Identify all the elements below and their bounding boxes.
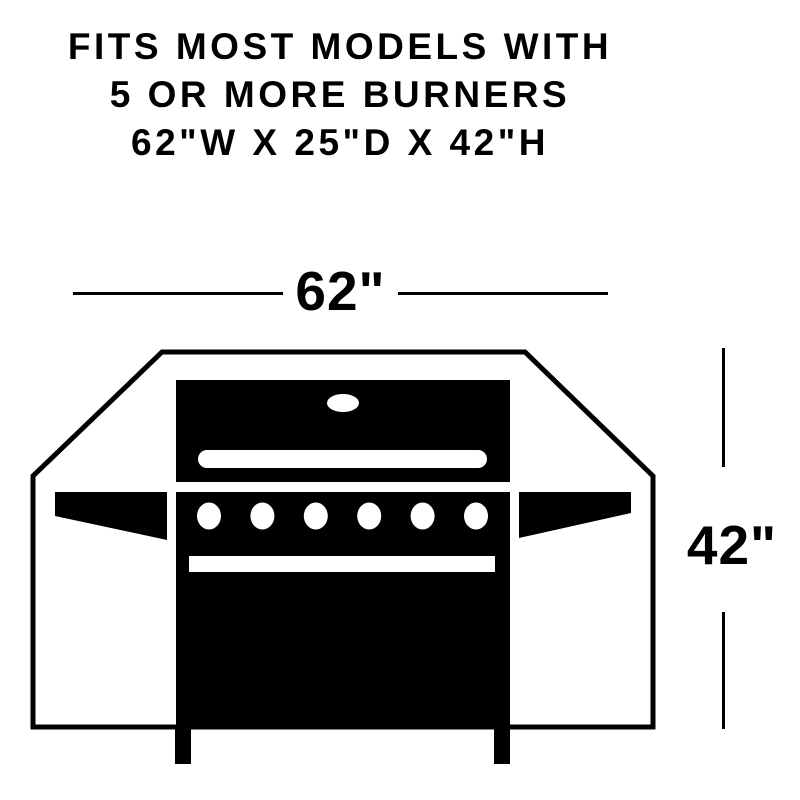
burner-knob bbox=[250, 503, 274, 530]
grill-leg-right bbox=[494, 727, 510, 764]
grill-body bbox=[176, 492, 510, 727]
lid-thermometer bbox=[327, 394, 359, 412]
grill-cover-figure bbox=[0, 0, 800, 800]
burner-knob bbox=[197, 503, 221, 530]
burner-knob bbox=[411, 503, 435, 530]
cart-handle-slot bbox=[189, 556, 495, 572]
left-side-shelf bbox=[55, 492, 167, 540]
burner-knob bbox=[304, 503, 328, 530]
right-side-shelf bbox=[519, 492, 631, 538]
grill-leg-left bbox=[175, 727, 191, 764]
burner-knob bbox=[357, 503, 381, 530]
lid-handle bbox=[198, 450, 487, 468]
product-diagram: FITS MOST MODELS WITH 5 OR MORE BURNERS … bbox=[0, 0, 800, 800]
grill-silhouette bbox=[55, 380, 631, 764]
burner-knob bbox=[464, 503, 488, 530]
